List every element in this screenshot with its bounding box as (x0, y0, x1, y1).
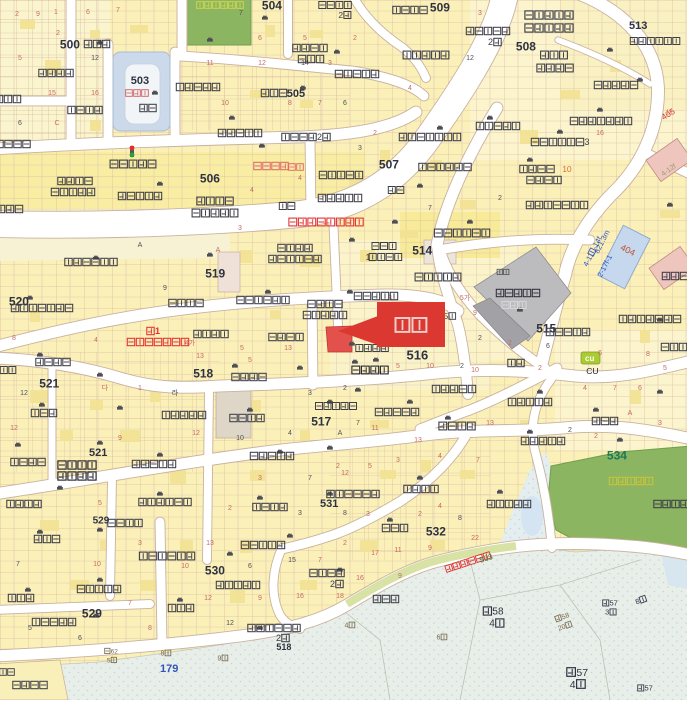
svg-text:2: 2 (373, 130, 377, 137)
svg-text:4: 4 (570, 679, 576, 691)
svg-text:11: 11 (666, 110, 673, 117)
svg-text:506: 506 (200, 171, 220, 185)
svg-text:6: 6 (343, 100, 347, 107)
svg-text:5: 5 (663, 365, 667, 372)
svg-text:15: 15 (48, 90, 56, 97)
svg-text:9: 9 (118, 435, 122, 442)
svg-text:3: 3 (298, 510, 302, 517)
svg-text:514: 514 (412, 243, 432, 257)
svg-text:6: 6 (638, 385, 642, 392)
svg-text:8: 8 (343, 510, 347, 517)
svg-text:2: 2 (538, 365, 542, 372)
svg-text:8: 8 (458, 515, 462, 522)
svg-text:8: 8 (646, 351, 650, 358)
svg-text:5: 5 (18, 55, 22, 62)
svg-text:3: 3 (658, 420, 662, 427)
svg-text:4: 4 (438, 453, 442, 460)
svg-text:4: 4 (489, 619, 495, 630)
svg-text:7: 7 (476, 457, 480, 464)
svg-text:다: 다 (102, 383, 109, 392)
svg-text:4: 4 (94, 337, 98, 344)
svg-text:12: 12 (204, 595, 212, 602)
svg-text:1: 1 (54, 9, 58, 16)
svg-text:10: 10 (181, 563, 189, 570)
svg-text:8: 8 (161, 651, 165, 658)
svg-text:18: 18 (336, 593, 344, 600)
svg-text:58: 58 (492, 607, 504, 618)
svg-text:7: 7 (428, 205, 432, 212)
svg-text:12: 12 (226, 620, 234, 627)
svg-text:3: 3 (238, 225, 242, 232)
svg-text:532: 532 (426, 524, 446, 538)
svg-text:3: 3 (328, 60, 332, 67)
svg-text:508: 508 (516, 39, 536, 53)
svg-text:22: 22 (471, 535, 479, 542)
svg-text:C: C (54, 120, 59, 127)
svg-text:517: 517 (311, 414, 331, 428)
svg-text:5가: 5가 (460, 293, 471, 302)
svg-text:4: 4 (298, 175, 302, 182)
svg-text:A: A (628, 410, 633, 417)
svg-text:3: 3 (605, 608, 609, 617)
svg-text:3: 3 (138, 540, 142, 547)
svg-text:A: A (216, 247, 221, 254)
svg-text:6: 6 (546, 343, 550, 350)
svg-text:6: 6 (258, 35, 262, 42)
svg-text:3: 3 (585, 137, 590, 147)
svg-text:A: A (338, 430, 343, 437)
svg-text:3: 3 (478, 10, 482, 17)
svg-text:6: 6 (86, 9, 90, 16)
svg-text:12: 12 (10, 425, 18, 432)
svg-text:4: 4 (408, 85, 412, 92)
svg-text:57: 57 (610, 599, 618, 608)
svg-text:57: 57 (576, 667, 588, 679)
svg-text:4: 4 (288, 430, 292, 437)
svg-text:9: 9 (398, 573, 402, 580)
svg-text:57: 57 (645, 684, 653, 693)
svg-text:2: 2 (418, 511, 422, 518)
svg-text:16: 16 (296, 593, 304, 600)
svg-text:7: 7 (239, 10, 243, 17)
svg-text:2: 2 (568, 427, 572, 434)
svg-text:518: 518 (193, 366, 213, 380)
svg-text:179: 179 (160, 663, 178, 675)
svg-text:513: 513 (629, 20, 647, 32)
svg-text:7: 7 (356, 420, 360, 427)
svg-text:519: 519 (205, 266, 225, 280)
svg-text:534: 534 (607, 448, 627, 462)
svg-text:5: 5 (98, 500, 102, 507)
svg-text:9: 9 (473, 310, 477, 317)
svg-text:2: 2 (338, 10, 343, 20)
svg-text:15: 15 (288, 557, 296, 564)
svg-text:6: 6 (18, 120, 22, 127)
svg-text:cu: cu (585, 354, 594, 363)
svg-text:12: 12 (258, 60, 266, 67)
svg-text:5: 5 (396, 363, 400, 370)
svg-text:12: 12 (192, 430, 200, 437)
svg-text:13: 13 (414, 437, 422, 444)
svg-text:2: 2 (330, 579, 335, 589)
svg-text:9: 9 (163, 285, 167, 292)
svg-text:10: 10 (426, 363, 434, 370)
svg-text:11: 11 (394, 547, 401, 554)
svg-text:12: 12 (466, 55, 474, 62)
svg-text:6: 6 (248, 563, 252, 570)
svg-text:2: 2 (488, 37, 493, 47)
svg-text:5: 5 (28, 625, 32, 632)
svg-text:2: 2 (343, 540, 347, 547)
svg-text:5: 5 (303, 35, 307, 42)
svg-text:518: 518 (276, 642, 291, 652)
svg-text:504: 504 (262, 0, 282, 12)
svg-text:531: 531 (320, 498, 338, 510)
svg-text:9: 9 (428, 545, 432, 552)
svg-text:2: 2 (498, 195, 502, 202)
svg-text:5: 5 (368, 463, 372, 470)
svg-text:12: 12 (341, 470, 349, 477)
svg-text:529: 529 (93, 516, 110, 527)
svg-text:2: 2 (594, 433, 598, 440)
svg-text:3: 3 (366, 511, 370, 518)
svg-text:16: 16 (356, 575, 364, 582)
svg-text:2: 2 (508, 340, 512, 347)
svg-text:6: 6 (598, 350, 602, 357)
svg-text:529: 529 (82, 606, 102, 620)
svg-text:10: 10 (562, 164, 572, 174)
svg-text:3: 3 (396, 457, 400, 464)
svg-text:503: 503 (131, 75, 149, 87)
svg-text:12: 12 (91, 55, 99, 62)
svg-text:4: 4 (583, 385, 587, 392)
svg-text:12: 12 (20, 390, 28, 397)
svg-text:521: 521 (89, 447, 107, 459)
svg-text:6: 6 (437, 635, 441, 642)
svg-text:7: 7 (308, 475, 312, 482)
svg-text:4: 4 (345, 623, 349, 630)
svg-text:2: 2 (336, 463, 340, 470)
svg-text:16: 16 (596, 130, 604, 137)
svg-text:2: 2 (343, 385, 347, 392)
svg-text:2: 2 (478, 335, 482, 342)
svg-text:7: 7 (16, 561, 20, 568)
svg-text:521: 521 (39, 376, 59, 390)
svg-text:2: 2 (460, 363, 464, 370)
svg-text:2: 2 (353, 35, 357, 42)
svg-text:A: A (138, 242, 143, 249)
svg-text:9: 9 (218, 656, 222, 663)
svg-text:5: 5 (107, 657, 111, 664)
svg-text:2: 2 (228, 505, 232, 512)
svg-text:13: 13 (206, 540, 214, 547)
svg-text:4: 4 (438, 503, 442, 510)
svg-text:1: 1 (155, 326, 160, 336)
svg-text:3: 3 (308, 390, 312, 397)
svg-text:7: 7 (116, 7, 120, 14)
svg-text:507: 507 (379, 157, 399, 171)
svg-text:10: 10 (236, 435, 244, 442)
svg-text:2: 2 (56, 30, 60, 37)
svg-text:3: 3 (358, 145, 362, 152)
svg-text:509: 509 (430, 0, 450, 14)
svg-text:9: 9 (36, 11, 40, 18)
svg-text:2: 2 (15, 11, 19, 18)
svg-text:11: 11 (371, 425, 378, 432)
svg-text:17: 17 (371, 550, 379, 557)
svg-text:2: 2 (317, 132, 322, 142)
svg-text:7: 7 (128, 600, 132, 607)
svg-text:10: 10 (471, 367, 479, 374)
svg-text:7: 7 (318, 557, 322, 564)
svg-text:라: 라 (172, 388, 179, 397)
svg-text:10: 10 (221, 100, 229, 107)
svg-text:9: 9 (258, 595, 262, 602)
svg-text:62: 62 (111, 648, 119, 655)
svg-text:16: 16 (91, 90, 99, 97)
svg-text:516: 516 (407, 348, 429, 363)
svg-text:13: 13 (196, 353, 204, 360)
svg-text:3: 3 (258, 475, 262, 482)
svg-text:530: 530 (205, 563, 225, 577)
svg-text:7: 7 (613, 385, 617, 392)
svg-text:505: 505 (287, 88, 305, 100)
svg-text:500: 500 (60, 37, 80, 51)
svg-text:13: 13 (284, 345, 292, 352)
svg-text:10: 10 (93, 561, 101, 568)
svg-text:5: 5 (248, 357, 252, 364)
svg-text:7: 7 (318, 100, 322, 107)
svg-text:6: 6 (78, 635, 82, 642)
svg-text:8: 8 (12, 335, 16, 342)
svg-text:11: 11 (206, 60, 213, 67)
svg-text:8: 8 (148, 625, 152, 632)
svg-text:5: 5 (240, 345, 244, 352)
svg-text:4: 4 (250, 187, 254, 194)
svg-text:13: 13 (486, 420, 494, 427)
svg-text:CU: CU (586, 366, 598, 376)
svg-text:1: 1 (138, 385, 142, 392)
svg-text:8: 8 (288, 100, 292, 107)
